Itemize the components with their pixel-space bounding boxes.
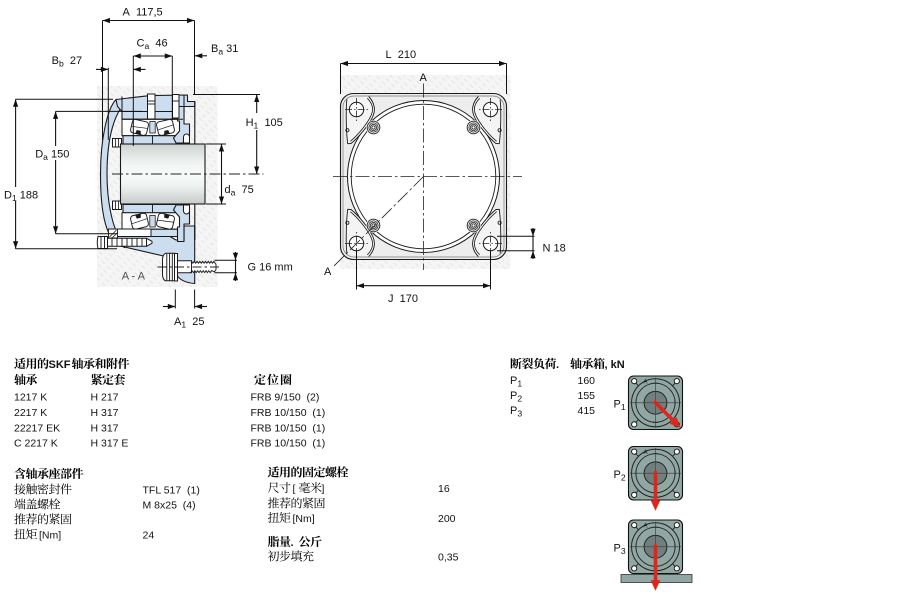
svg-text:22217 EK: 22217 EK [14,422,60,434]
svg-text:FRB 10/150 (1): FRB 10/150 (1) [251,407,326,419]
svg-text:2217 K: 2217 K [14,407,47,419]
svg-text:H 317 E: H 317 E [91,438,129,450]
svg-text:[Nm]: [Nm] [39,530,61,542]
svg-text:160: 160 [578,375,596,387]
svg-text:A1 25: A1 25 [174,316,204,330]
svg-text:[: [ [293,483,296,495]
svg-text:C 2217 K: C 2217 K [14,438,58,450]
svg-text:Da 150: Da 150 [35,149,69,163]
svg-text:L 210: L 210 [386,49,417,61]
svg-text:H 317: H 317 [91,407,119,419]
svg-text:, kN: , kN [605,359,625,371]
svg-text:H 217: H 217 [91,392,119,404]
svg-text:FRB 10/150 (1): FRB 10/150 (1) [251,422,326,434]
svg-text:H 317: H 317 [91,422,119,434]
svg-text:Ba 31: Ba 31 [211,43,238,57]
svg-text:1217 K: 1217 K [14,392,47,404]
svg-text:G 16 mm: G 16 mm [248,262,293,274]
svg-text:.: . [556,359,559,371]
svg-text:D1 188: D1 188 [4,190,38,204]
svg-text:415: 415 [578,405,596,417]
svg-text:200: 200 [438,513,456,525]
svg-text:A - A: A - A [122,271,146,283]
svg-text:A: A [644,450,648,456]
svg-text:H1 105: H1 105 [246,117,283,131]
svg-text:A 117,5: A 117,5 [123,7,163,19]
svg-text:TFL 517 (1): TFL 517 (1) [143,485,200,497]
svg-text:]: ] [322,483,325,495]
svg-text:Bb 27: Bb 27 [52,55,82,69]
svg-text:N 18: N 18 [543,243,566,255]
svg-text:A: A [324,266,332,278]
svg-text:SKF: SKF [49,359,71,371]
svg-text:0,35: 0,35 [438,552,459,564]
svg-text:da 75: da 75 [225,184,254,198]
svg-text:155: 155 [578,390,596,402]
svg-text:.: . [291,537,294,549]
svg-text:FRB 9/150 (2): FRB 9/150 (2) [251,392,320,404]
svg-text:24: 24 [143,530,155,542]
svg-text:J 170: J 170 [388,293,418,305]
svg-text:A: A [644,524,648,530]
svg-text:FRB 10/150 (1): FRB 10/150 (1) [251,438,326,450]
svg-text:[Nm]: [Nm] [293,513,315,525]
svg-text:Ca 46: Ca 46 [137,38,168,52]
svg-text:A: A [420,72,428,84]
svg-text:A: A [644,380,648,386]
svg-text:16: 16 [438,483,450,495]
svg-text:M 8x25 (4): M 8x25 (4) [143,500,196,512]
